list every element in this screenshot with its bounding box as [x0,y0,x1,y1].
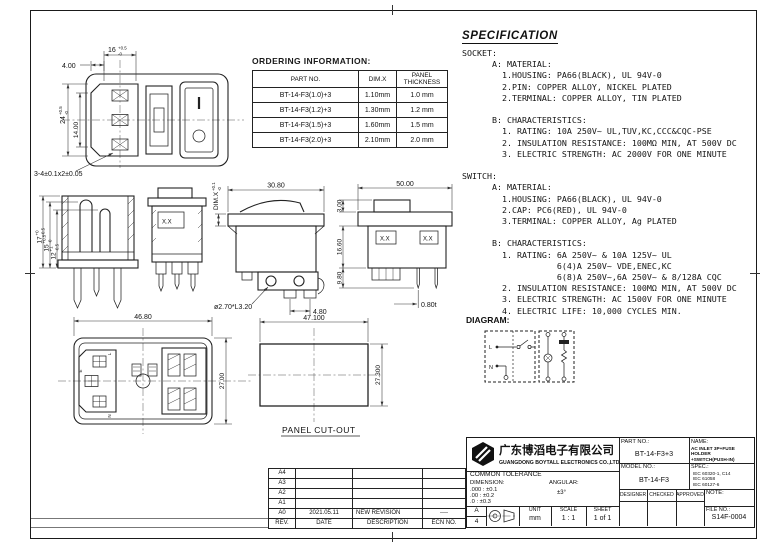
sheet-label: SHEET [586,507,619,513]
pin-size-callout: ø2.70*L3.20 [214,304,252,311]
name-label: NAME: [691,439,708,445]
desc-cell [353,499,423,508]
switch-side-view-drawing: 30.80 DIM.X +0.1 -0 ø2.70*L3.20 4.80 [214,178,330,320]
ordering-info-title: ORDERING INFORMATION: [252,56,371,66]
projection-box [486,506,520,526]
approved-label: APPROVED [676,489,704,502]
table-cell: BT-14-F3(1.5)+3 [253,118,359,133]
date-cell: 2021.05.11 [296,509,353,518]
dim-panel-thickness-sup: +0.1 [211,182,216,191]
paper-size-letter: A [467,506,486,517]
spec-label: SPEC.: [691,464,709,470]
dim-offset: 4.00 [62,63,76,70]
ecn-cell [423,499,465,508]
spec-value: IEC 60320-1, C14 IEC 61058 IEC 60127-6 [693,471,731,487]
revision-row: A3 [269,478,465,488]
ordering-info-table: PART NO. DIM.X PANEL THICKNESS BT-14-F3(… [252,70,448,148]
dim-panel-thickness: DIM.X [213,191,220,210]
model-no-label: MODEL NO.: [621,464,655,470]
dim-socket-height: 24 [60,116,67,124]
cert-mark: X.X [380,237,390,243]
revision-extension-line [31,527,268,528]
revision-row: A4 [269,469,465,478]
angular-value: ±3° [557,490,566,496]
col-panel-thickness: PANEL THICKNESS [397,71,448,88]
rev-cell: A2 [269,489,296,498]
table-cell: 1.60mm [359,118,397,133]
model-no-box: MODEL NO.: BT-14-F3 [619,463,690,490]
sheet-box: SHEET 1 of 1 [586,506,619,526]
tolerance-rows: .000 : ±0.1 .00 : ±0.2 .0 : ±0.3 [470,487,497,506]
dim-socket-width-tol-sup: +0.5 [118,46,127,51]
part-no-box: PART NO.: BT-14-F3+3 [619,438,690,464]
rev-cell: A4 [269,469,296,478]
scale-value: 1 : 1 [551,515,586,522]
revision-extension-line [31,518,268,519]
title-block: 广东博滔电子有限公司 GUANGDONG BOYTALL ELECTRONICS… [466,437,755,528]
cert-mark: X.X [423,237,433,243]
table-cell: 1.5 mm [397,118,448,133]
front-view-drawing: 16 +0.5 -0 4.00 24 +0.5 -0 14.00 3-4±0.1… [34,24,250,180]
revision-table: A4 A3 A2 A1 A0 2021.05.11 NEW REVISION [268,468,466,529]
ecn-cell [423,479,465,488]
part-no-label: PART NO.: [621,439,649,445]
frame-tick-top [392,5,393,15]
rev-cell: A3 [269,479,296,488]
approved-box: APPROVED [676,489,705,526]
dim-body-height: 16.60 [337,238,344,255]
rocker-off-mark [193,130,205,142]
dim-socket-width: 16 [108,47,116,54]
line-terminal-label: L [489,345,492,351]
table-cell: 2.0 mm [397,133,448,148]
unit-value: mm [519,515,551,522]
col-dim-x: DIM.X [359,71,397,88]
dim-cutout-width: 47.100 [303,315,325,322]
dim-flange: 3.00 [337,199,344,212]
frame-tick-bottom [392,532,393,542]
unit-box: UNIT mm [519,506,552,526]
note-box: NOTE: [704,489,754,507]
note-label: NOTE: [706,490,724,496]
ecn-cell [423,469,465,478]
ecn-header: ECN NO. [423,519,465,528]
ecn-cell [423,489,465,498]
dim-socket-height-tol-sup: +0.5 [58,106,63,115]
dim-height-12-sup: +1 [49,246,54,252]
top-view-drawing: 50.00 X.X X.X 3.00 16.60 9.80 0.80t [334,178,456,318]
table-cell: 1.0 mm [397,88,448,103]
checked-box: CHECKED [647,489,677,526]
paper-size-number: 4 [467,517,486,527]
checked-label: CHECKED [647,489,676,502]
panel-cutout-drawing: 47.100 27.300 PANEL CUT-OUT [248,312,443,442]
designer-box: DESIGNER [619,489,648,526]
neutral-terminal-label: N [489,365,493,371]
dim-switch-width: 30.80 [267,183,285,190]
sheet-value: 1 of 1 [586,515,619,522]
sheet-meta-strip: A 4 UNIT mm SCALE 1 : 1 SHEET [467,506,619,526]
model-no-value: BT-14-F3 [619,475,689,484]
table-cell: BT-14-F3(1.0)+3 [253,88,359,103]
resistor-symbol [562,350,567,363]
scale-label: SCALE [551,507,586,513]
dim-height-15-sup: +0.5 [42,234,47,243]
circuit-diagram: L N [482,328,577,386]
table-row: BT-14-F3(2.0)+3 2.10mm 2.0 mm [253,133,448,148]
table-cell: 1.2 mm [397,103,448,118]
drawing-sheet: 16 +0.5 -0 4.00 24 +0.5 -0 14.00 3-4±0.1… [0,0,770,544]
rear-view-drawing: 46.80 27.00 L E N [52,312,257,440]
table-cell: 2.10mm [359,133,397,148]
terminal-label-neutral: N [107,414,112,417]
dim-height-17-sup: +0 [35,230,40,236]
name-value: AC INLET 3P+FUSE HOLDER +SWITCH(PUSH-IN) [691,446,754,462]
spec-box: SPEC.: IEC 60320-1, C14 IEC 61058 IEC 60… [689,463,754,490]
frame-tick-left [25,273,35,274]
table-row: BT-14-F3(1.2)+3 1.30mm 1.2 mm [253,103,448,118]
dimension-label: DIMENSION: [470,480,504,486]
unit-label: UNIT [519,507,551,513]
revision-row: A2 [269,488,465,498]
cert-mark: X.X [162,220,172,226]
desc-cell [353,489,423,498]
dim-panel-thickness-sub: -0 [217,187,222,191]
rev-cell: A0 [269,509,296,518]
table-cell: BT-14-F3(2.0)+3 [253,133,359,148]
dim-height-12-sub: -0.5 [55,243,60,251]
company-logo [470,441,496,467]
scale-box: SCALE 1 : 1 [551,506,587,526]
third-angle-projection-icon [487,506,518,526]
panel-cutout-label: PANEL CUT-OUT [282,425,356,435]
dim-socket-width-tol-sub: -0 [118,52,122,57]
desc-cell [353,469,423,478]
tolerance-title: COMMON TOLERANCE [470,472,542,478]
table-row: BT-14-F3(1.5)+3 1.60mm 1.5 mm [253,118,448,133]
specification-section: SPECIFICATION SOCKET: A: MATERIAL: 1.HOU… [462,26,758,317]
terminal-label-line: L [107,352,112,355]
table-row: BT-14-F3(1.0)+3 1.10mm 1.0 mm [253,88,448,103]
tolerance-box: COMMON TOLERANCE DIMENSION: ANGULAR: .00… [467,471,619,507]
col-part-no: PART NO. [253,71,359,88]
revision-footer-row: REV. DATE DESCRIPTION ECN NO. [269,518,465,528]
fuse-symbol [559,340,569,344]
dim-height-12: 12 [51,252,58,260]
hole-callout: 3-4±0.1x2±0.05 [34,171,83,178]
dim-rear-width: 46.80 [134,314,152,321]
diagram-label: DIAGRAM: [466,315,509,325]
part-no-value: BT-14-F3+3 [619,449,689,458]
desc-cell: NEW REVISION [353,509,423,518]
company-box: 广东博滔电子有限公司 GUANGDONG BOYTALL ELECTRONICS… [467,438,619,472]
revision-row: A1 [269,498,465,508]
terminal-label-earth: E [78,369,83,372]
file-no-value: S14F-0004 [704,514,754,521]
table-cell: 1.10mm [359,88,397,103]
dim-height-17-sub: -0.5 [41,227,46,235]
designer-label: DESIGNER [619,489,647,502]
dim-pin-height: 9.80 [337,271,344,284]
desc-cell [353,479,423,488]
file-no-label: FILE NO.: [706,507,730,513]
dim-pin-thickness: 0.80t [421,302,437,309]
revision-row: A0 2021.05.11 NEW REVISION ---- [269,508,465,518]
spec-title: SPECIFICATION [462,30,558,44]
dim-socket-height-tol-sub: -0 [64,111,69,115]
date-cell [296,489,353,498]
name-box: NAME: AC INLET 3P+FUSE HOLDER +SWITCH(PU… [689,438,754,464]
company-name-en: GUANGDONG BOYTALL ELECTRONICS CO.,LTD [499,460,619,466]
file-no-box: FILE NO.: S14F-0004 [704,506,754,526]
angular-label: ANGULAR: [549,480,579,486]
desc-header: DESCRIPTION [353,519,423,528]
dim-inner-height: 14.00 [73,121,80,138]
rev-header: REV. [269,519,296,528]
table-cell: BT-14-F3(1.2)+3 [253,103,359,118]
company-name-cn: 广东博滔电子有限公司 [499,442,614,458]
ecn-cell: ---- [423,509,465,518]
section-view-drawing: 17 +0 -0.5 15 +0.5 -0 12 +1 -0.5 [36,182,138,314]
dim-cutout-height: 27.300 [375,365,382,385]
spec-text: SOCKET: A: MATERIAL: 1.HOUSING: PA66(BLA… [462,48,758,317]
date-cell [296,499,353,508]
dim-rear-height: 27.00 [219,372,226,389]
dim-overall-width: 50.00 [396,181,414,188]
rev-cell: A1 [269,499,296,508]
dim-height-15-sub: -0 [48,239,53,243]
table-cell: 1.30mm [359,103,397,118]
date-cell [296,479,353,488]
paper-size-box: A 4 [467,506,487,526]
date-cell [296,469,353,478]
date-header: DATE [296,519,353,528]
fuse-side-view-drawing: X.X [142,184,212,296]
